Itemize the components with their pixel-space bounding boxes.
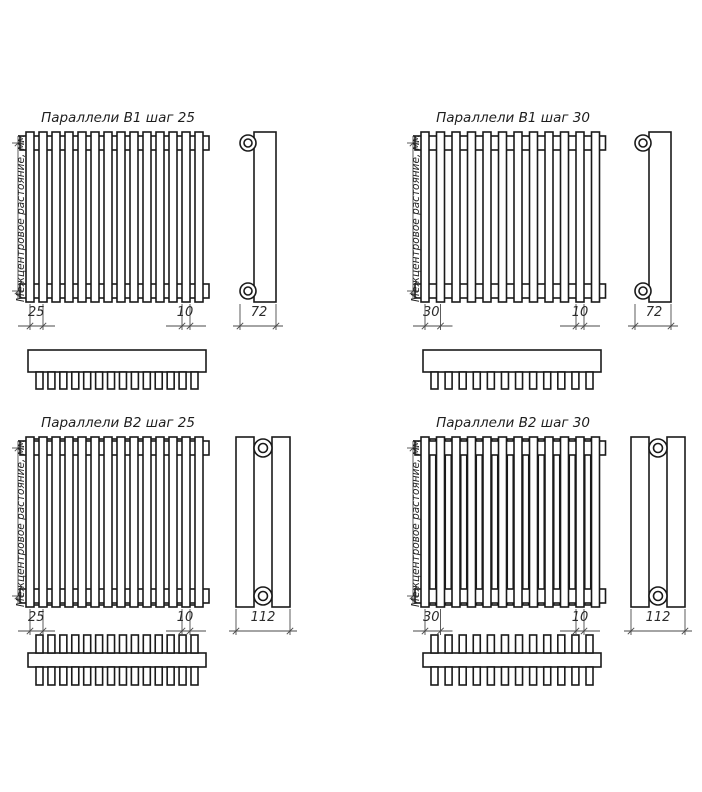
quadrant-b2-step-30: Параллели В2 шаг 30 Межцентровое растоян…	[397, 405, 702, 705]
dim-tube-width-label: 10	[170, 610, 200, 625]
dim-tube-width-label: 10	[170, 305, 200, 320]
drawing-title: Параллели В1 шаг 30	[397, 110, 629, 126]
axis-label-center-distance: Межцентровое растояние, мм	[410, 435, 424, 607]
drawing-title: Параллели В1 шаг 25	[2, 110, 234, 126]
dim-pitch-label: 30	[423, 305, 457, 320]
views-b1-step-25	[20, 132, 276, 389]
quadrant-b2-step-25: Параллели В2 шаг 25 Межцентровое растоян…	[2, 405, 312, 705]
views-b2-step-30	[415, 437, 685, 685]
dim-pitch-label: 25	[28, 305, 62, 320]
views-b2-step-25	[20, 437, 290, 685]
dim-depth-label: 112	[630, 610, 686, 625]
drawing-title: Параллели В2 шаг 30	[397, 415, 629, 431]
axis-label-center-distance: Межцентровое растояние, мм	[15, 130, 29, 302]
dim-pitch-label: 25	[28, 610, 62, 625]
axis-label-center-distance: Межцентровое растояние, мм	[410, 130, 424, 302]
quadrant-b1-step-25: Параллели В1 шаг 25 Межцентровое растоян…	[2, 100, 312, 400]
dim-depth-label: 72	[238, 305, 280, 320]
dim-depth-label: 72	[633, 305, 675, 320]
radiator-drawing-b1-25	[2, 100, 312, 400]
views-b1-step-30	[415, 132, 671, 389]
radiator-drawing-b1-30	[397, 100, 702, 400]
radiator-drawing-b2-30	[397, 405, 702, 705]
radiator-drawing-b2-25	[2, 405, 312, 705]
quadrant-b1-step-30: Параллели В1 шаг 30 Межцентровое растоян…	[397, 100, 702, 400]
dim-pitch-label: 30	[423, 610, 457, 625]
drawing-sheet: Параллели В1 шаг 25 Межцентровое растоян…	[0, 0, 702, 792]
dimension-lines-b1-step-30	[407, 136, 678, 330]
dim-depth-label: 112	[235, 610, 291, 625]
drawing-title: Параллели В2 шаг 25	[2, 415, 234, 431]
axis-label-center-distance: Межцентровое растояние, мм	[15, 435, 29, 607]
dim-tube-width-label: 10	[565, 610, 595, 625]
dim-tube-width-label: 10	[565, 305, 595, 320]
